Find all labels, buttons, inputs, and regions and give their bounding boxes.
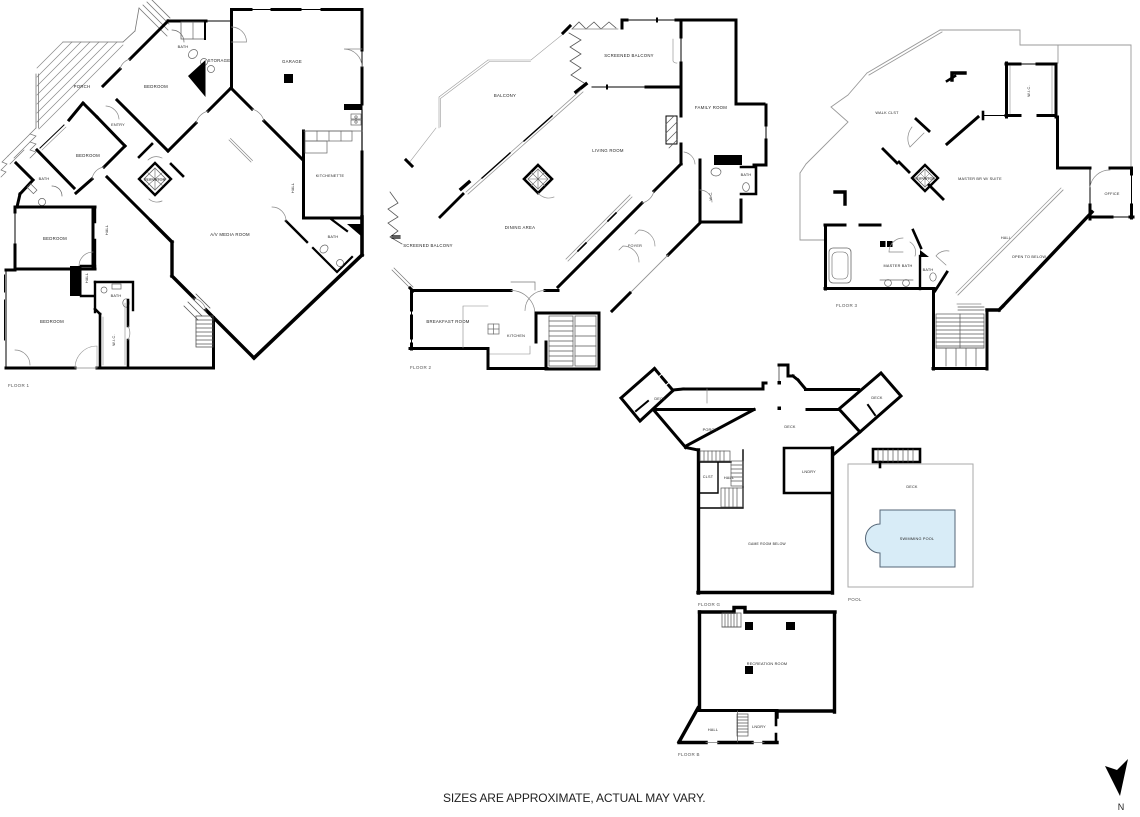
svg-text:DECK: DECK	[871, 396, 883, 400]
svg-text:PORCH: PORCH	[74, 84, 91, 89]
svg-text:DECK: DECK	[654, 397, 666, 401]
svg-text:FLOOR 3: FLOOR 3	[836, 303, 858, 308]
svg-text:LIVING ROOM: LIVING ROOM	[592, 148, 624, 153]
svg-text:LNDRY: LNDRY	[752, 725, 766, 729]
svg-text:FLOOR G: FLOOR G	[698, 602, 721, 607]
svg-text:BATH: BATH	[39, 177, 50, 181]
svg-text:W.I.C.: W.I.C.	[112, 334, 116, 346]
svg-text:SWIMMING POOL: SWIMMING POOL	[900, 537, 934, 541]
svg-text:RECREATION ROOM: RECREATION ROOM	[747, 662, 787, 666]
svg-text:LNDRY: LNDRY	[802, 470, 816, 474]
svg-text:BATH: BATH	[923, 268, 934, 272]
svg-text:BATH: BATH	[328, 235, 339, 239]
svg-text:BATH: BATH	[741, 173, 752, 177]
svg-text:STORAGE: STORAGE	[208, 58, 231, 63]
svg-text:DECK: DECK	[906, 485, 918, 489]
svg-text:BEDROOM: BEDROOM	[144, 84, 168, 89]
svg-text:HALL: HALL	[291, 183, 295, 193]
svg-text:BATH: BATH	[111, 294, 122, 298]
svg-text:HALL: HALL	[724, 476, 734, 480]
svg-text:SIZES ARE APPROXIMATE, ACTUAL: SIZES ARE APPROXIMATE, ACTUAL MAY VARY.	[443, 791, 705, 805]
svg-text:GAME ROOM BELOW: GAME ROOM BELOW	[748, 542, 786, 546]
svg-text:W.C.: W.C.	[709, 191, 713, 200]
svg-text:A/V MEDIA ROOM: A/V MEDIA ROOM	[210, 232, 250, 237]
svg-text:GARAGE: GARAGE	[282, 59, 302, 64]
svg-text:MASTER BR W/ SUITE: MASTER BR W/ SUITE	[958, 177, 1002, 181]
svg-text:WALK CLST: WALK CLST	[875, 111, 899, 115]
svg-text:W.I.C.: W.I.C.	[1027, 85, 1031, 97]
svg-text:MASTER BATH: MASTER BATH	[884, 264, 913, 268]
svg-text:KITCHEN: KITCHEN	[507, 334, 525, 338]
svg-text:N: N	[1118, 802, 1125, 812]
svg-text:KITCHENETTE: KITCHENETTE	[316, 174, 345, 178]
svg-text:BEDROOM: BEDROOM	[76, 153, 100, 158]
svg-text:CLST: CLST	[703, 475, 714, 479]
svg-text:SCREENED BALCONY: SCREENED BALCONY	[604, 53, 654, 58]
svg-text:POOL: POOL	[848, 597, 862, 602]
svg-text:FLOOR B: FLOOR B	[678, 752, 700, 757]
svg-text:HALL: HALL	[105, 225, 109, 235]
svg-text:HALL: HALL	[708, 728, 718, 732]
svg-text:FLOOR 2: FLOOR 2	[410, 365, 432, 370]
svg-text:SCREENED BALCONY: SCREENED BALCONY	[403, 243, 453, 248]
svg-text:BEDROOM: BEDROOM	[43, 236, 67, 241]
svg-text:BATH: BATH	[178, 45, 189, 49]
svg-text:ENTRY: ENTRY	[111, 123, 125, 127]
svg-text:OPEN TO BELOW: OPEN TO BELOW	[1012, 255, 1047, 259]
svg-text:HALL: HALL	[85, 273, 89, 283]
svg-text:BEDROOM: BEDROOM	[40, 319, 64, 324]
svg-text:BALCONY: BALCONY	[494, 93, 516, 98]
svg-text:FAMILY ROOM: FAMILY ROOM	[695, 105, 727, 110]
svg-text:PORCH: PORCH	[703, 428, 718, 432]
svg-text:ELEVATOR: ELEVATOR	[914, 177, 935, 181]
svg-text:DECK: DECK	[784, 425, 796, 429]
svg-text:ELEVATOR: ELEVATOR	[144, 178, 165, 182]
svg-text:DINING AREA: DINING AREA	[505, 225, 535, 230]
svg-text:FLOOR 1: FLOOR 1	[8, 383, 30, 388]
svg-text:OFFICE: OFFICE	[1104, 192, 1119, 196]
